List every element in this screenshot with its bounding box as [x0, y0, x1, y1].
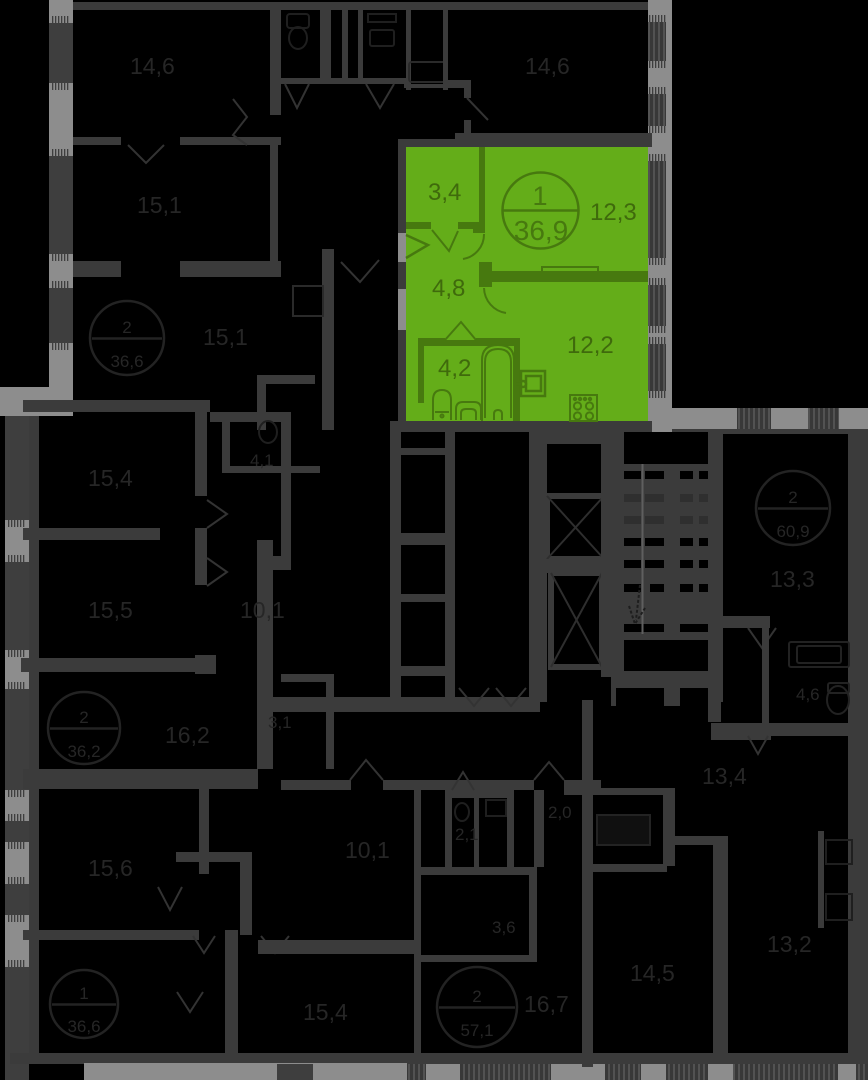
svg-text:3,4: 3,4: [428, 179, 461, 206]
svg-text:4,8: 4,8: [432, 275, 465, 302]
svg-text:2: 2: [472, 987, 481, 1006]
svg-text:12,2: 12,2: [567, 332, 614, 359]
svg-text:57,1: 57,1: [460, 1021, 493, 1040]
svg-text:2: 2: [788, 488, 797, 507]
svg-text:13,4: 13,4: [702, 763, 747, 789]
svg-text:2: 2: [79, 708, 88, 727]
svg-text:60,9: 60,9: [776, 522, 809, 541]
svg-text:4,1: 4,1: [250, 451, 274, 470]
svg-text:2,1: 2,1: [455, 825, 479, 844]
svg-text:15,4: 15,4: [303, 999, 348, 1025]
svg-text:1: 1: [79, 984, 88, 1003]
svg-text:3,6: 3,6: [492, 918, 516, 937]
svg-text:15,5: 15,5: [88, 597, 133, 623]
svg-text:3,1: 3,1: [268, 713, 292, 732]
svg-text:36,6: 36,6: [110, 352, 143, 371]
svg-text:15,1: 15,1: [137, 192, 182, 218]
svg-text:14,6: 14,6: [525, 53, 570, 79]
svg-text:15,6: 15,6: [88, 855, 133, 881]
svg-text:16,7: 16,7: [524, 991, 569, 1017]
svg-text:15,4: 15,4: [88, 465, 133, 491]
svg-text:13,2: 13,2: [767, 931, 812, 957]
svg-text:14,5: 14,5: [630, 960, 675, 986]
svg-text:10,1: 10,1: [240, 597, 285, 623]
svg-text:15,1: 15,1: [203, 324, 248, 350]
svg-text:16,2: 16,2: [165, 722, 210, 748]
svg-text:1: 1: [532, 181, 547, 211]
svg-text:4,2: 4,2: [438, 355, 471, 382]
svg-text:2,0: 2,0: [548, 803, 572, 822]
svg-text:12,3: 12,3: [590, 199, 637, 226]
svg-text:13,3: 13,3: [770, 566, 815, 592]
svg-text:10,1: 10,1: [345, 837, 390, 863]
svg-text:4,6: 4,6: [796, 685, 820, 704]
svg-text:36,9: 36,9: [514, 215, 569, 246]
svg-text:36,6: 36,6: [67, 1017, 100, 1036]
svg-text:2: 2: [122, 318, 131, 337]
svg-text:14,6: 14,6: [130, 53, 175, 79]
svg-text:36,2: 36,2: [67, 742, 100, 761]
